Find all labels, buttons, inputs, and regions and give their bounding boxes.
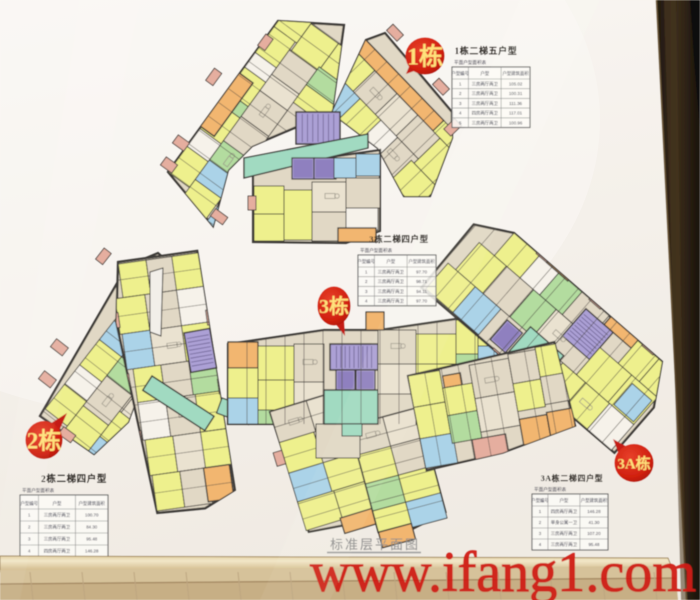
svg-text:户型编号: 户型编号: [357, 258, 375, 265]
svg-text:www.ifang1.com: www.ifang1.com: [310, 541, 696, 600]
svg-text:三房两厅两卫: 三房两厅两卫: [44, 524, 71, 531]
svg-text:1栋: 1栋: [407, 43, 443, 71]
svg-text:3栋: 3栋: [319, 294, 349, 318]
svg-text:3A栋二梯四户型: 3A栋二梯四户型: [541, 473, 604, 483]
svg-text:三房两厅两卫: 三房两厅两卫: [44, 512, 71, 519]
svg-text:四房两厅两卫: 四房两厅两卫: [44, 548, 71, 555]
svg-text:户型编号: 户型编号: [531, 497, 549, 504]
svg-text:平面户型面积表: 平面户型面积表: [534, 486, 567, 493]
svg-text:户型: 户型: [53, 500, 62, 507]
svg-text:三房两厅两卫: 三房两厅两卫: [378, 268, 405, 275]
svg-text:95.48: 95.48: [86, 537, 98, 542]
svg-text:146.28: 146.28: [587, 509, 601, 514]
svg-text:四房两厅两卫: 四房两厅两卫: [551, 508, 578, 515]
svg-text:100.70: 100.70: [85, 513, 99, 518]
svg-text:2栋二梯四户型: 2栋二梯四户型: [41, 473, 107, 485]
svg-text:户型建筑面积: 户型建筑面积: [79, 500, 106, 507]
svg-text:平面户型面积表: 平面户型面积表: [360, 247, 393, 254]
svg-text:3A栋: 3A栋: [617, 454, 650, 472]
svg-text:三房两厅两卫: 三房两厅两卫: [551, 530, 578, 537]
svg-text:84.30: 84.30: [86, 525, 98, 530]
svg-text:三房两厅两卫: 三房两厅两卫: [44, 536, 71, 543]
svg-text:户型: 户型: [386, 258, 395, 265]
svg-text:41.30: 41.30: [588, 520, 600, 525]
svg-text:户型编号: 户型编号: [451, 70, 469, 77]
svg-text:单身公寓一卫: 单身公寓一卫: [551, 519, 578, 526]
svg-text:146.28: 146.28: [85, 549, 99, 554]
svg-text:户型: 户型: [560, 497, 569, 504]
svg-text:107.20: 107.20: [587, 531, 601, 536]
svg-text:平面户型面积表: 平面户型面积表: [454, 59, 487, 66]
svg-text:户型建筑面积: 户型建筑面积: [581, 497, 608, 504]
